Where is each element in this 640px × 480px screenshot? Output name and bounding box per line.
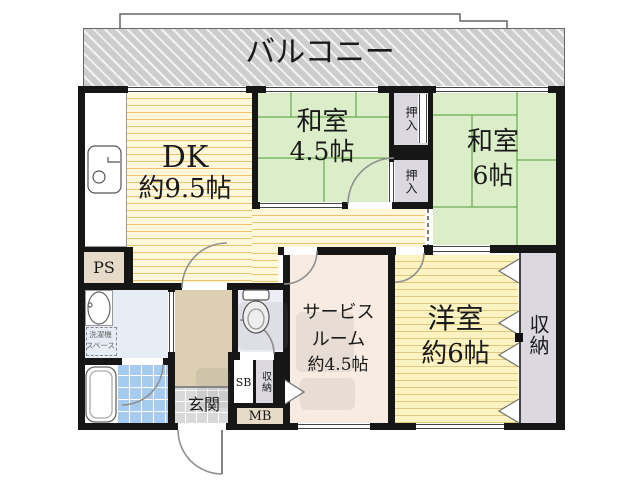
yoshitsu-size-label: 約6帖 xyxy=(397,339,514,369)
genkan-step-line xyxy=(175,386,232,388)
service-room-label-2: ルーム xyxy=(297,328,380,352)
dk-label: DK xyxy=(130,141,240,175)
dk-size-label: 約9.5帖 xyxy=(115,174,255,204)
wall-service-yoshitsu xyxy=(388,247,395,423)
wall-washitsu6-bottom xyxy=(490,245,556,253)
wall-oshiire-mid xyxy=(389,145,433,160)
bath-tile-floor xyxy=(118,365,168,423)
wall-service-left xyxy=(283,255,290,423)
window-top-washitsu6 xyxy=(436,86,548,93)
door-gap-yoshitsu xyxy=(396,247,424,255)
mb-label: MB xyxy=(237,408,283,424)
door-washroom xyxy=(168,292,175,352)
door-gap-washitsu45 xyxy=(348,202,392,209)
sliding-door-washitsu6 xyxy=(433,245,490,253)
washer-space-label-1: 洗濯機 xyxy=(86,330,115,340)
balcony-parapet-line xyxy=(120,14,507,28)
front-door-opening xyxy=(178,423,226,430)
washitsu6-label: 和室 xyxy=(438,127,548,157)
wall-corner-post xyxy=(423,245,433,255)
sliding-door-washitsu45 xyxy=(260,202,342,209)
sliding-door-track xyxy=(425,209,431,247)
yoshitsu-label: 洋室 xyxy=(399,303,512,335)
vanity-counter xyxy=(85,290,113,326)
corridor-upper xyxy=(252,209,427,247)
closet-small-label: 収納 xyxy=(256,362,273,402)
door-gap-service xyxy=(284,247,317,255)
window-bottom-yoshitsu xyxy=(416,423,504,430)
wall-hall-toilet xyxy=(232,290,238,360)
service-room-size-label: 約4.5帖 xyxy=(294,354,382,377)
toilet-room xyxy=(238,290,283,352)
ps-label: PS xyxy=(84,255,124,281)
sliding-door-oshiire-lower xyxy=(388,162,395,202)
door-gap-toilet xyxy=(240,352,274,360)
sb-label: SB xyxy=(233,375,254,390)
balcony-label: バルコニー xyxy=(200,36,440,70)
service-room-label-1: サービス xyxy=(292,301,385,325)
hall xyxy=(175,290,232,388)
oshiire-upper-label: 押入 xyxy=(396,96,426,142)
window-top-dk xyxy=(128,86,246,93)
genkan-label: 玄関 xyxy=(179,394,229,416)
corridor-lower xyxy=(252,247,278,283)
washer-space-label-2: スペース xyxy=(84,341,117,351)
oshiire-lower-label: 押入 xyxy=(396,162,426,201)
washitsu45-size-label: 4.5帖 xyxy=(263,137,381,165)
wall-oshiire-washitsu6 xyxy=(428,92,433,209)
door-arc-entrance xyxy=(178,430,222,474)
washitsu6-size-label: 6帖 xyxy=(443,161,543,189)
wall-outer-right xyxy=(556,86,565,430)
door-gap-hall xyxy=(182,283,227,290)
floor-plan: バルコニー xyxy=(0,0,640,480)
kitchen-counter xyxy=(84,92,127,247)
window-top-washitsu45 xyxy=(266,86,378,93)
window-bottom-service xyxy=(298,423,370,430)
washitsu45-label: 和室 xyxy=(265,107,380,137)
door-gap-bath xyxy=(122,358,163,365)
closet-right-label: 収納 xyxy=(521,295,555,375)
bath-tub-zone xyxy=(85,365,118,423)
